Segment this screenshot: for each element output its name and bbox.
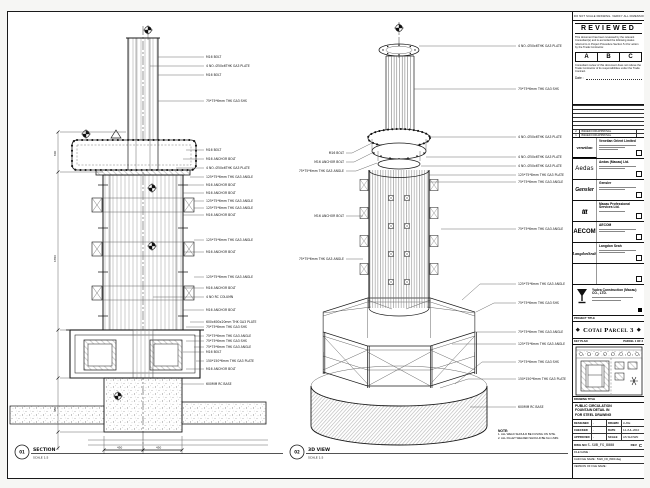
address-line-bar — [592, 300, 621, 301]
dimension-label: 600 — [53, 150, 57, 156]
address-line-bar — [599, 168, 625, 169]
callout-label: 125*75*6mm THK GA3 ANGLE — [206, 175, 253, 179]
consultant-row: venetian Venetian Orient Limited — [573, 138, 644, 159]
callout-label: M16 ANCHOR BOLT — [206, 157, 236, 161]
review-stamp-paragraph: Consultant review of this document does … — [575, 64, 642, 74]
callout-label: 125*75*6mm THK GA3 ANGLE — [518, 282, 565, 286]
grade-c-cell: C — [620, 53, 641, 61]
field-value: - — [592, 427, 607, 433]
banner-ornament-icon: ◆ — [637, 327, 641, 333]
callout-label: M16 ANCHOR BOLT — [314, 160, 344, 164]
revision-number: 1 — [573, 134, 580, 137]
revision-description: ISSUED FOR APPROVAL — [580, 134, 636, 137]
dimension-label: 450 — [53, 406, 57, 412]
callout-label: 4 NO. Ø50x6THK GA3 PLATE — [518, 163, 562, 168]
fields-row: APPROVED - SCALE AS SHOWN — [573, 434, 644, 441]
project-title-text: Cotai Parcel 3 — [583, 327, 634, 334]
address-line-bar — [599, 149, 618, 150]
drawing-title-label-text: DRAWING TITLE — [574, 397, 595, 402]
venetian-logo: venetian — [573, 138, 597, 158]
consultant-name: Gensler — [599, 182, 642, 186]
status-checkbox — [636, 150, 642, 156]
key-plan-sub-text: PARCEL 1 OF 3 — [623, 339, 643, 344]
consultant-row: ttt Macau Professional Services Ltd. — [573, 201, 644, 222]
rev-value: C — [638, 443, 644, 448]
consultant-row-empty — [573, 264, 644, 285]
key-plan-drawing — [575, 346, 643, 396]
callout-label: 4 NO. Ø50x6THK GA3 PLATE — [206, 165, 250, 170]
empty-logo-cell — [573, 264, 597, 284]
iso-view-title: 02 3D VIEW SCALE 1:5 — [290, 445, 568, 460]
address-line-bar — [599, 211, 625, 212]
iso-callouts: 4 NO. Ø50x6THK GA3 PLATE 75*75*6mm THK G… — [299, 43, 566, 409]
review-stamp-title: REVIEWED — [575, 23, 642, 34]
dimension-label: 450 — [156, 446, 162, 450]
field-value: 14-JUL-2010 — [622, 427, 644, 433]
dimension-label: 1350 — [53, 255, 57, 262]
review-grade-row: A B C — [575, 52, 642, 62]
banner-ornament-icon: ◆ — [576, 327, 580, 333]
notes-block: NOTE: 1. ALL WELD SHOULD BE FUSING ON SI… — [498, 429, 568, 440]
callout-label: 75*75*6mm THK GA3 ANGLE — [206, 334, 251, 338]
address-line-bar — [599, 145, 636, 146]
callout-label: 75*75*6mm THK GA3 SHS — [206, 325, 247, 329]
callout-label: 600MM RC BASE — [518, 405, 544, 409]
mps-logo: ttt — [573, 201, 597, 221]
callout-label: 75*75*6mm THK GA3 ANGLE — [206, 345, 251, 349]
view-title: SECTION — [33, 447, 56, 453]
address-line-bar — [599, 231, 625, 232]
dwg-no-label: DWG NO — [573, 443, 588, 447]
address-line-bar — [599, 250, 636, 251]
gensler-logo: Gensler — [573, 180, 597, 200]
consultant-name: AECOM — [599, 224, 642, 228]
field-value: - — [592, 434, 607, 440]
address-line-bar — [599, 189, 625, 190]
consultant-row: LangdonSeah Langdon Seah — [573, 243, 644, 264]
callout-label: M16 ANCHOR BOLT — [206, 250, 236, 254]
review-stamp: REVIEWED This document has been reviewed… — [573, 21, 644, 105]
callout-label: 75*75*6mm THK GA3 ANGLE — [299, 257, 344, 261]
callout-label: 75*75*6mm THK GA3 ANGLE — [518, 227, 563, 231]
status-checkbox — [636, 192, 642, 198]
fields-row: CHECKED - DATE 14-JUL-2010 — [573, 427, 644, 434]
grade-b-cell: B — [598, 53, 620, 61]
callout-label: 4 NO. Ø50x6THK GA3 PLATE — [518, 43, 562, 48]
disclaimer-strip: DO NOT SCALE DRAWING. VERIFY ALL DIMENSI… — [573, 12, 644, 21]
consultant-name: Aedas (Macau) Ltd. — [599, 161, 642, 165]
note-line: 2. ALL FILLET WELDED SHOULD BE 6mm MIN. — [498, 437, 568, 441]
status-checkbox — [636, 255, 642, 261]
callout-label: 75*75*6mm THK GA3 SHS — [206, 99, 247, 103]
callout-label: 75*75*6mm THK GA3 ANGLE — [518, 180, 563, 184]
contractor-block: Yudea Construction (Macau) CO., LTD. — [573, 285, 644, 316]
contractor-name: Yudea Construction (Macau) CO., LTD. — [592, 289, 640, 297]
black-square-marker — [638, 308, 642, 312]
revision-table: 2 ISSUED FOR APPROVAL 1 ISSUED FOR APPRO… — [573, 105, 644, 138]
callout-label: M16 ANCHOR BOLT — [206, 308, 236, 312]
address-line-bar — [599, 252, 625, 253]
file-row: VERSION OF FILE NAME : — [573, 464, 644, 470]
callout-label: 4 NO. Ø50x6THK GA3 PLATE — [206, 63, 250, 68]
field-label: DESIGNED — [573, 420, 592, 426]
callout-label: M16 BOLT — [329, 151, 344, 155]
callout-label: 4 NO RC COLUMN — [206, 295, 234, 299]
address-line-bar — [599, 166, 636, 167]
callout-label: 600MM RC BASE — [206, 382, 232, 386]
callout-label: 75*75*6mm THK GA3 ANGLE — [518, 330, 563, 334]
callout-label: M16 ANCHOR BOLT — [206, 183, 236, 187]
title-block-column: DO NOT SCALE DRAWING. VERIFY ALL DIMENSI… — [572, 12, 644, 478]
callout-label: 4 NO. Ø50x6THK GA3 PLATE — [518, 154, 562, 159]
file-row: CAD FILE NAME : 5320_FD_8000.dwg — [573, 457, 644, 464]
contractor-logo-icon — [575, 287, 589, 305]
drawing-sheet-canvas: 600 1350 450 450 450 M16 BOLT 4 NO. Ø50x… — [0, 0, 650, 488]
dwg-number-row: DWG NO S-SUB_FG_8000 REV C — [573, 441, 644, 450]
rev-label: REV — [631, 443, 638, 447]
view-scale: SCALE 1:5 — [308, 456, 323, 460]
consultant-name: Venetian Orient Limited — [599, 140, 642, 144]
project-title-label-text: PROJECT TITLE — [574, 316, 595, 321]
callout-label: M16 BOLT — [206, 350, 221, 354]
callout-label: 75*75*6mm THK GA3 SHS — [518, 87, 559, 91]
address-line-bar — [592, 297, 633, 298]
status-checkbox — [636, 276, 642, 282]
callout-label: 600x600x20mm THK GA3 PLATE — [206, 320, 257, 324]
review-stamp-paragraph: This document has been reviewed by the r… — [575, 36, 642, 50]
callout-label: M16 ANCHOR BOLT — [206, 191, 236, 195]
view-number: 01 — [19, 450, 25, 455]
status-checkbox — [636, 234, 642, 240]
callout-label: M16 ANCHOR BOLT — [206, 367, 236, 371]
callout-label: 125*75*6mm THK GA3 ANGLE — [206, 206, 253, 210]
fields-row: DESIGNED - DRAWN LUKE — [573, 420, 644, 427]
address-line-bar — [599, 229, 636, 230]
callout-label: 75*75*6mm THK GA3 SHS — [518, 301, 559, 305]
drawing-title-line: FOR STEEL DRAWING — [575, 413, 642, 417]
section-view-title: 01 SECTION SCALE 1:5 — [15, 445, 283, 460]
status-checkbox — [636, 171, 642, 177]
field-label: APPROVED — [573, 434, 592, 440]
callout-label: 4 NO. Ø50x6THK GA3 PLATE — [518, 134, 562, 139]
project-title-banner: ◆ Cotai Parcel 3 ◆ — [573, 322, 644, 339]
field-value: AS SHOWN — [622, 434, 644, 440]
field-label: DATE — [607, 427, 622, 433]
date-line — [586, 76, 642, 80]
langdon-seah-logo: LangdonSeah — [573, 243, 597, 263]
drawing-title: PUBLIC CIRCULATION FOUNTAIN DETAIL IN FO… — [573, 403, 644, 420]
callout-label: 75*75*6mm THK GA3 SHS — [518, 360, 559, 364]
callout-label: M16 ANCHOR BOLT — [206, 286, 236, 290]
dwg-no-value: S-SUB_FG_8000 — [588, 443, 631, 447]
date-label: Date : — [575, 76, 584, 80]
field-value: - — [592, 420, 607, 426]
callout-label: M16 ANCHOR BOLT — [206, 213, 236, 217]
field-label: SCALE — [607, 434, 622, 440]
callout-label: M16 ANCHOR BOLT — [314, 214, 344, 218]
consultant-name: Langdon Seah — [599, 245, 642, 249]
review-date-row: Date : — [575, 76, 642, 80]
view-title: 3D VIEW — [308, 447, 330, 453]
file-row: FILE NAME : — [573, 450, 644, 457]
key-plan — [573, 345, 644, 397]
key-plan-label-text: KEY PLAN — [574, 339, 588, 344]
callout-label: 125*75*8mm THK GA3 PLATE — [518, 173, 564, 177]
dimension-label: 450 — [117, 446, 123, 450]
callout-label: 75*75*6mm THK GA3 ANGLE — [299, 169, 344, 173]
callout-label: M16 BOLT — [206, 73, 221, 77]
consultant-row: AECOM AECOM — [573, 222, 644, 243]
callout-label: M16 BOLT — [206, 55, 221, 59]
callout-label: 125*75*6mm THK GA3 ANGLE — [518, 342, 565, 346]
consultant-row: Gensler Gensler — [573, 180, 644, 201]
revision-row: 1 ISSUED FOR APPROVAL — [573, 133, 644, 137]
address-line-bar — [599, 187, 636, 188]
callout-label: 75*75*6mm THK GA3 SHS — [206, 339, 247, 343]
field-label: DRAWN — [607, 420, 622, 426]
callout-label: 150*150*6mm THK GA3 PLATE — [518, 377, 566, 381]
aecom-logo: AECOM — [573, 222, 597, 242]
field-value: LUKE — [622, 420, 644, 426]
callout-label: 125*75*6mm THK GA3 ANGLE — [206, 238, 253, 242]
status-checkbox — [636, 213, 642, 219]
view-scale: SCALE 1:5 — [33, 456, 48, 460]
consultant-row: Aedas Aedas (Macau) Ltd. — [573, 159, 644, 180]
grade-a-cell: A — [576, 53, 598, 61]
consultant-name: Macau Professional Services Ltd. — [599, 203, 642, 211]
callout-label: 125*75*6mm THK GA3 ANGLE — [206, 275, 253, 279]
callout-label: 150*150*6mm THK GA3 PLATE — [206, 359, 254, 363]
drawing-views-svg: 600 1350 450 450 450 M16 BOLT 4 NO. Ø50x… — [0, 0, 650, 488]
callout-label: M16 BOLT — [206, 148, 221, 152]
view-number: 02 — [294, 450, 300, 455]
revision-by-cell — [636, 134, 644, 137]
callout-label: 125*75*6mm THK GA3 ANGLE — [206, 199, 253, 203]
aedas-logo: Aedas — [573, 159, 597, 179]
section-callouts: M16 BOLT 4 NO. Ø50x6THK GA3 PLATE M16 BO… — [206, 55, 257, 386]
address-line-bar — [599, 147, 625, 148]
field-label: CHECKED — [573, 427, 592, 433]
